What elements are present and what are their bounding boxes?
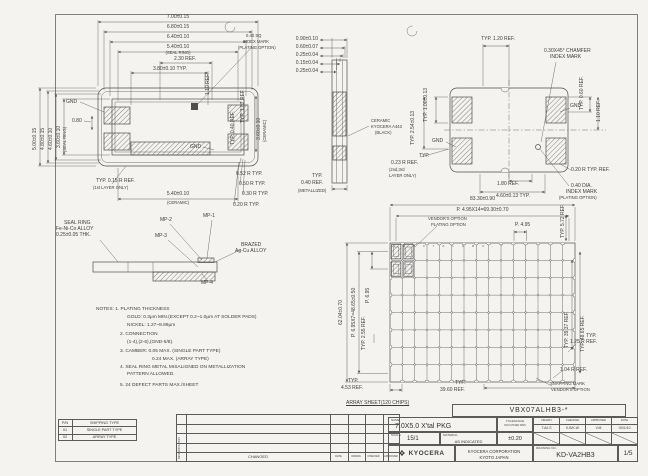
pn-table-cell: 01 bbox=[58, 428, 72, 432]
sign-col-value: '00/1/10 bbox=[612, 425, 637, 433]
brazed-callout: Ag-Cu ALLOY bbox=[235, 249, 266, 255]
dim-label: TYP. 2.55 REF. bbox=[362, 316, 368, 350]
pn-table-cell: ARRAY TYPE bbox=[72, 435, 137, 439]
dim-label: TYP. 1.00±0.13 bbox=[424, 88, 430, 122]
dim-label: 6.80±0.15 bbox=[98, 25, 258, 31]
dim-label: 0.25±0.04 bbox=[288, 69, 318, 75]
signature-col: APPROVED V.M bbox=[585, 418, 611, 444]
tolerance-value-box: ±0.20 bbox=[497, 432, 533, 445]
index-mark-callout: INDEX MARK bbox=[243, 40, 269, 45]
signature-grid: DRAWN T.A/I.S CHECKED K.B/K.W APPROVED V… bbox=[533, 417, 638, 445]
revision-col-header: DATE bbox=[330, 456, 347, 459]
dim-label: TYP. 5.72 REF. bbox=[561, 204, 567, 238]
dim-label: 0.60±0.07 bbox=[288, 45, 318, 51]
layer-note: LAYER ONLY) bbox=[389, 174, 416, 179]
array-sheet-caption: ARRAY SHEET(120 CHIPS) bbox=[346, 401, 409, 407]
layer-note: (2nd,3rd bbox=[389, 168, 405, 173]
gnd-label: GND bbox=[66, 100, 77, 106]
radius-callout: 0.50 R TYP. bbox=[239, 182, 266, 188]
array-sheet-linework bbox=[390, 243, 575, 382]
seal-ring-callout: 0.25±0.05 THK. bbox=[56, 233, 91, 239]
index-mark-callout: (PLATING OPTION) bbox=[238, 46, 276, 51]
snapping-mark-callout: VENDOR'S OPTION bbox=[551, 388, 590, 393]
dim-label: TYP. bbox=[348, 379, 358, 385]
notes-line: NICKEL: 1.27~8.89μm bbox=[127, 323, 175, 328]
dim-label: 1.10 REF. bbox=[597, 100, 603, 122]
dim-label: 3.80±0.10 TYP. bbox=[110, 67, 230, 73]
side-view-linework bbox=[320, 38, 369, 191]
dim-label: (SEAL RING) bbox=[63, 127, 68, 152]
layer-note: TYP. bbox=[419, 154, 429, 160]
layer-note: 0.23 R REF. bbox=[391, 161, 418, 167]
dim-label: 62.04±0.70 bbox=[339, 300, 345, 325]
sign-col-header: CHECKED bbox=[560, 418, 585, 425]
drawing-frame bbox=[56, 15, 638, 462]
dim-label: 1.80 REF. bbox=[497, 182, 519, 188]
dim-label: 83.30±0.90 bbox=[390, 197, 575, 203]
dim-label: P. 6.95X7=48.65±0.50 bbox=[352, 288, 358, 337]
vendors-option-callout: PLATING OPTION bbox=[431, 223, 466, 228]
dim-label: 7.00±0.15 bbox=[98, 15, 258, 21]
drawing-number: KD-VA2HB3 bbox=[534, 452, 617, 459]
dim-label: 4.60±0.10 bbox=[49, 128, 55, 150]
layer-note: (1st LAYER ONLY) bbox=[93, 186, 128, 191]
dim-label: 5.00±0.15 bbox=[33, 128, 39, 150]
notes-line: 2. CONNECTION bbox=[120, 332, 158, 337]
mp-label: MP-3 bbox=[155, 234, 167, 240]
mp-label: MP-2 bbox=[160, 218, 172, 224]
signature-col: DRAWN T.A/I.S bbox=[534, 418, 559, 444]
radius-callout: 1.04 R REF. bbox=[560, 368, 587, 374]
drawing-number-label: DRAWING NO. bbox=[536, 447, 557, 450]
company-box: KYOCERA CORPORATION KYOTO JAPAN bbox=[455, 445, 533, 462]
pn-table-cell: SHIPPING TYPE bbox=[72, 421, 137, 425]
tolerance-label: TOLERANCE bbox=[498, 420, 532, 423]
material-label: MATERIAL bbox=[443, 434, 458, 437]
signature-stroke bbox=[586, 433, 611, 444]
dim-label: 6.40±0.10 bbox=[98, 35, 258, 41]
material-callout: KYOCERA A443 bbox=[371, 125, 402, 130]
sign-col-header: DATE bbox=[612, 418, 637, 425]
signature-col: CHECKED K.B/K.W bbox=[559, 418, 585, 444]
seal-detail-linework bbox=[93, 220, 240, 281]
dim-label: 4.53 REF. bbox=[341, 386, 363, 392]
notes-line: 5. 24 DEFECT PARTS MAX./SHEET bbox=[120, 383, 198, 388]
dim-label: P. 6.95 bbox=[366, 288, 372, 303]
signature-stroke bbox=[560, 433, 585, 444]
pn-table-cell: SINGLE PART TYPE bbox=[72, 428, 137, 432]
radius-callout: 0.52 R TYP. bbox=[236, 172, 263, 178]
signature-stroke bbox=[534, 433, 559, 444]
notes-line: (1-4),(2-6),(GND-5/8). bbox=[127, 340, 173, 345]
dim-label: 0.90±0.10 bbox=[288, 37, 318, 43]
scale-box: SCALE 15/1 bbox=[388, 432, 440, 445]
material-box: MATERIAL AS INDICATED bbox=[440, 432, 497, 445]
dim-label: P. 4.95X14=69.30±0.70 bbox=[396, 208, 569, 214]
array-dims-linework bbox=[345, 205, 580, 392]
radius-callout: 0.20 R TYP. REF. bbox=[571, 168, 610, 174]
drawing-sheet: 7.00±0.15 6.80±0.15 6.40±0.10 5.40±0.10 … bbox=[0, 0, 648, 476]
vendors-option-callout: VENDOR'S OPTION bbox=[428, 217, 467, 222]
dim-label: 2.30 REF. bbox=[130, 57, 240, 63]
tolerance-label-box: TOLERANCE NON STATED DIMS bbox=[497, 417, 533, 432]
dim-label: 5.40±0.10 bbox=[118, 192, 238, 198]
notes-line: PATTERN ALLOWED. bbox=[127, 372, 175, 377]
sign-col-value: V.M bbox=[586, 425, 611, 433]
dim-label: TYP. 0.40 REF. bbox=[231, 111, 237, 145]
signature-col: DATE '00/1/10 bbox=[611, 418, 637, 444]
gnd-label: GND bbox=[432, 139, 443, 145]
notes-line: GOLD: 0.3μm MIN.(EXCEPT 0.2~1.0μm AT SOL… bbox=[127, 315, 257, 320]
kyocera-brand-text: KYOCERA bbox=[409, 450, 445, 457]
radius-callout: 0.30 R TYP. bbox=[242, 192, 269, 198]
dim-label: 0.25±0.04 bbox=[288, 53, 318, 59]
snapping-mark-callout: SNAPPING MARK bbox=[550, 382, 585, 387]
notes-line: 0.24 MAX. (ARRAY TYPE) bbox=[152, 357, 209, 362]
name-label: NAME bbox=[391, 419, 400, 422]
logo-box: ❖ KYOCERA bbox=[388, 445, 455, 462]
dim-label: TYP. 2.54±0.13 bbox=[411, 111, 417, 145]
gnd-label: GND bbox=[190, 145, 201, 151]
dim-label: 1.10 REF. bbox=[206, 73, 212, 95]
company-location: KYOTO JAPAN bbox=[456, 455, 532, 460]
revision-row-line bbox=[176, 452, 400, 453]
index-mark-callout: 0.40 SQ bbox=[246, 34, 261, 39]
dim-label: (CERAMIC) bbox=[118, 201, 238, 206]
revision-row-line bbox=[176, 424, 400, 425]
pn-table-cell: 02 bbox=[58, 435, 72, 439]
mp-label: MP-4 bbox=[201, 281, 213, 287]
revision-col-header: DRAWN bbox=[348, 456, 365, 459]
dim-label: (METALLIZED) bbox=[298, 189, 326, 194]
radius-callout: 1.25 R REF. bbox=[570, 340, 597, 346]
revision-col-header: CHECKED bbox=[365, 456, 382, 459]
sheet-number-box: 1/5 bbox=[618, 445, 638, 462]
dim-label: 0.40 REF. bbox=[301, 181, 323, 187]
mp-label: MP-1 bbox=[203, 214, 215, 220]
dim-label: TYP. 1.20 REF. bbox=[470, 37, 526, 43]
dim-label: TYP. bbox=[455, 381, 465, 387]
tolerance-sublabel: NON STATED DIMS bbox=[498, 425, 532, 427]
notes-line: 4. SEAL RING METAL MISALIGNED ON METALLI… bbox=[120, 365, 245, 370]
chamfer-callout: INDEX MARK bbox=[550, 55, 581, 61]
sign-col-header: DRAWN bbox=[534, 418, 559, 425]
dim-label: 0.15±0.04 bbox=[288, 61, 318, 67]
notes-line: 3. CAMBER: 0.05 MAX. (SINGLE PART TYPE) bbox=[120, 349, 220, 354]
gnd-label: GND bbox=[570, 104, 581, 110]
part-number-box: VBX07ALHB3-* bbox=[452, 404, 626, 417]
dim-label: 4.80±0.15 bbox=[41, 128, 47, 150]
part-number: VBX07ALHB3-* bbox=[453, 407, 625, 414]
sign-col-value: T.A/I.S bbox=[534, 425, 559, 433]
name-box: NAME 7.0X5.0 X'tal PKG bbox=[388, 417, 497, 432]
revision-row-line bbox=[176, 443, 400, 444]
revision-modification-label: MODIFICATION bbox=[178, 437, 181, 459]
drawing-number-box: DRAWING NO. KD-VA2HB3 bbox=[533, 445, 618, 462]
scale-label: SCALE bbox=[391, 434, 401, 437]
pn-table-cell: P/N bbox=[58, 421, 72, 425]
dim-label: 0.80 bbox=[72, 119, 82, 125]
dim-label: (SEAL RING) bbox=[98, 51, 258, 56]
drawing-name: 7.0X5.0 X'tal PKG bbox=[395, 423, 451, 430]
dim-label: P. 4.95 bbox=[515, 223, 530, 229]
company-name: KYOCERA CORPORATION bbox=[456, 449, 532, 454]
tolerance-value: ±0.20 bbox=[498, 436, 532, 442]
dim-label: (CERAMIC) bbox=[263, 120, 268, 142]
notes-line: NOTES: 1. PLATING THICKNESS bbox=[96, 307, 169, 312]
dim-label: 39.60 REF. bbox=[440, 388, 465, 394]
revision-row-line bbox=[176, 433, 400, 434]
sign-col-header: APPROVED bbox=[586, 418, 611, 425]
signature-stroke bbox=[612, 433, 637, 444]
revision-changed-label: CHANGED bbox=[186, 455, 330, 459]
material-value: AS INDICATED bbox=[441, 439, 496, 444]
layer-note: TYP. 0.15 R REF. bbox=[96, 179, 135, 185]
dim-label: TYP. bbox=[312, 174, 322, 180]
chip-markings: VBX07ALHB3-* bbox=[393, 245, 510, 248]
material-callout: (BLACK) bbox=[375, 131, 392, 136]
material-callout: CERAMIC bbox=[371, 119, 390, 124]
scale-value: 15/1 bbox=[407, 436, 419, 442]
kyocera-logo-icon: ❖ bbox=[398, 449, 405, 458]
sign-col-value: K.B/K.W bbox=[560, 425, 585, 433]
dim-label: TYP. 1.02 REF. bbox=[241, 89, 247, 123]
sheet-number: 1/5 bbox=[619, 450, 637, 457]
